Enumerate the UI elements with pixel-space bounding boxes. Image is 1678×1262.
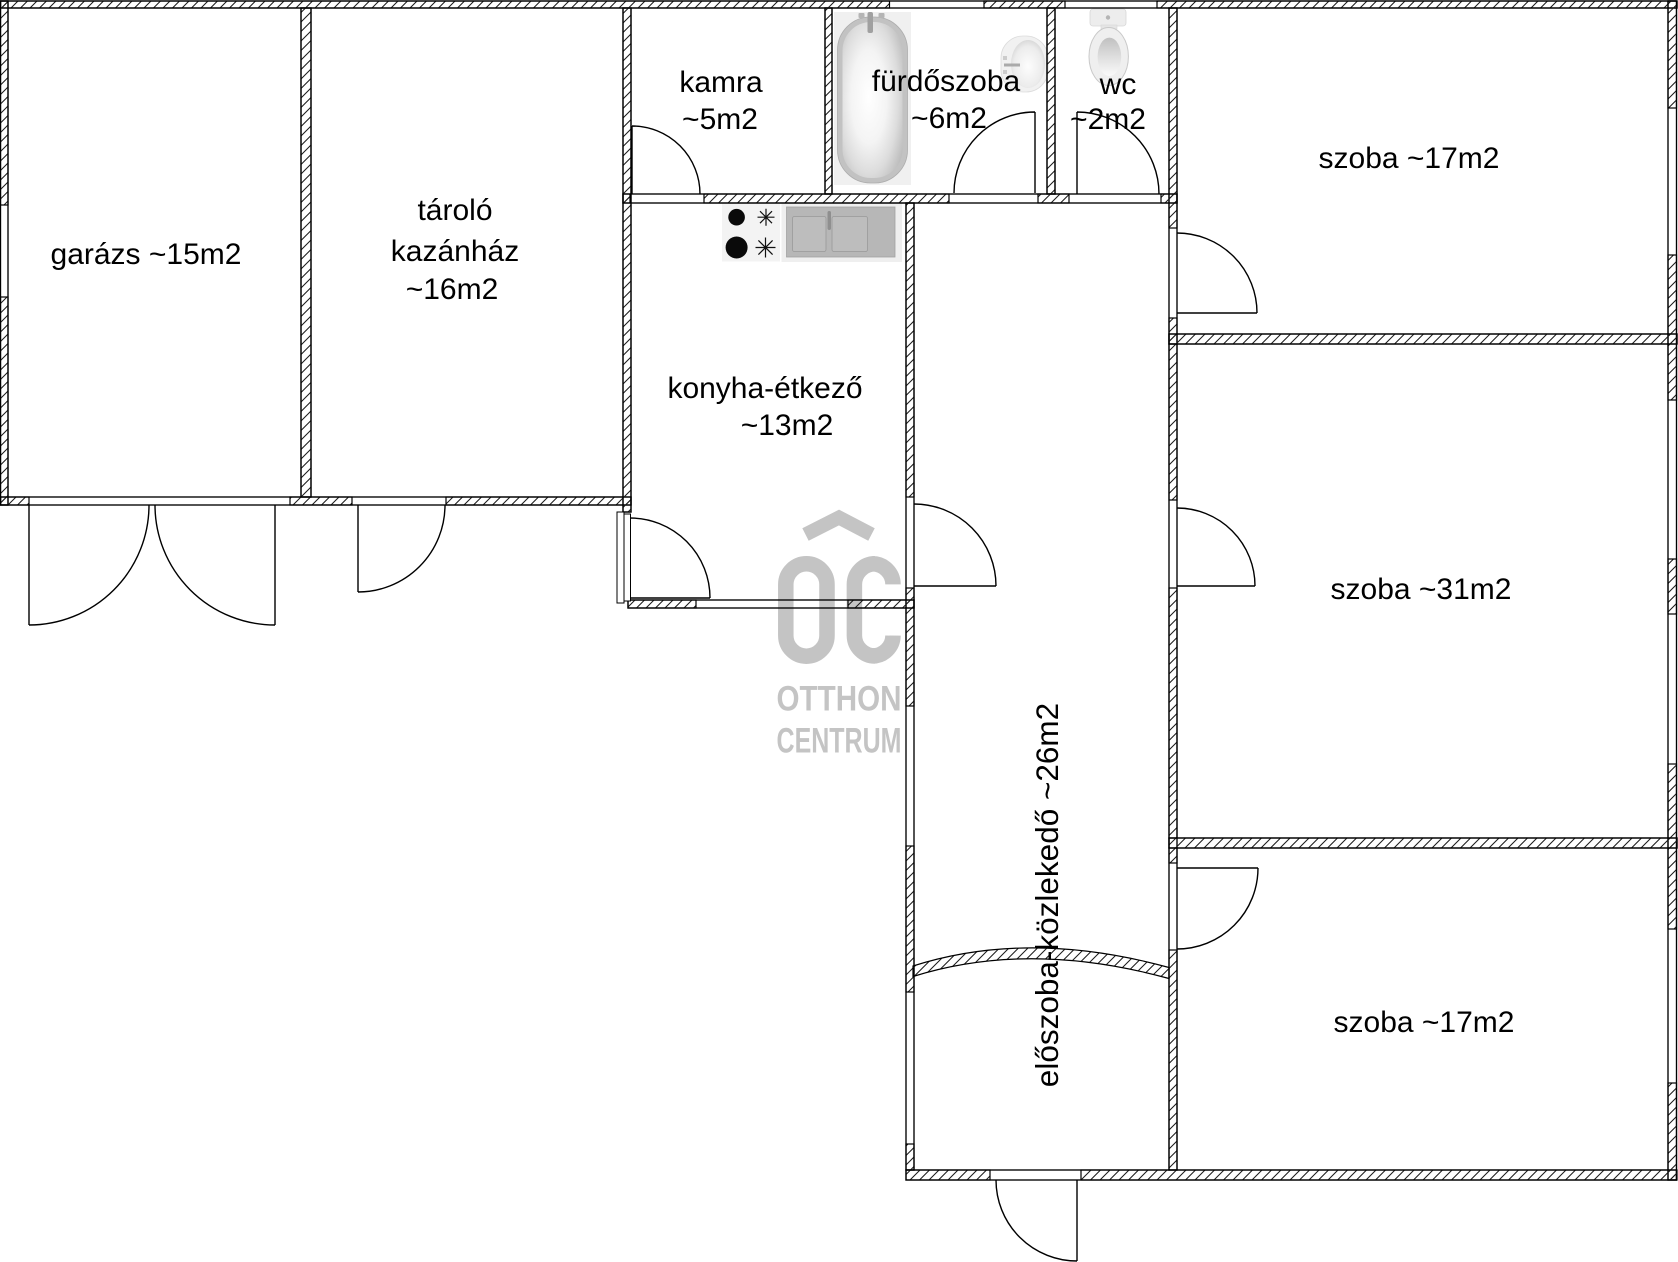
svg-text:előszoba-közlekedő ~26m2: előszoba-közlekedő ~26m2 (1029, 703, 1065, 1087)
svg-text:szoba ~17m2: szoba ~17m2 (1319, 142, 1500, 175)
svg-text:fürdőszoba: fürdőszoba (872, 65, 1021, 98)
svg-text:konyha-étkező: konyha-étkező (667, 372, 862, 405)
svg-text:wc: wc (1099, 68, 1137, 101)
svg-text:kazánház: kazánház (391, 235, 519, 268)
svg-text:CENTRUM: CENTRUM (777, 721, 902, 760)
svg-text:tároló: tároló (417, 194, 492, 227)
svg-text:kamra: kamra (679, 66, 763, 99)
svg-text:~5m2: ~5m2 (682, 103, 758, 136)
svg-text:~2m2: ~2m2 (1070, 103, 1146, 136)
svg-text:~16m2: ~16m2 (406, 273, 499, 306)
svg-text:garázs ~15m2: garázs ~15m2 (51, 238, 242, 271)
svg-text:szoba ~17m2: szoba ~17m2 (1334, 1006, 1515, 1039)
svg-text:szoba ~31m2: szoba ~31m2 (1331, 573, 1512, 606)
svg-text:~13m2: ~13m2 (741, 409, 834, 442)
svg-text:OTTHON: OTTHON (777, 679, 902, 718)
svg-text:~6m2: ~6m2 (911, 102, 987, 135)
